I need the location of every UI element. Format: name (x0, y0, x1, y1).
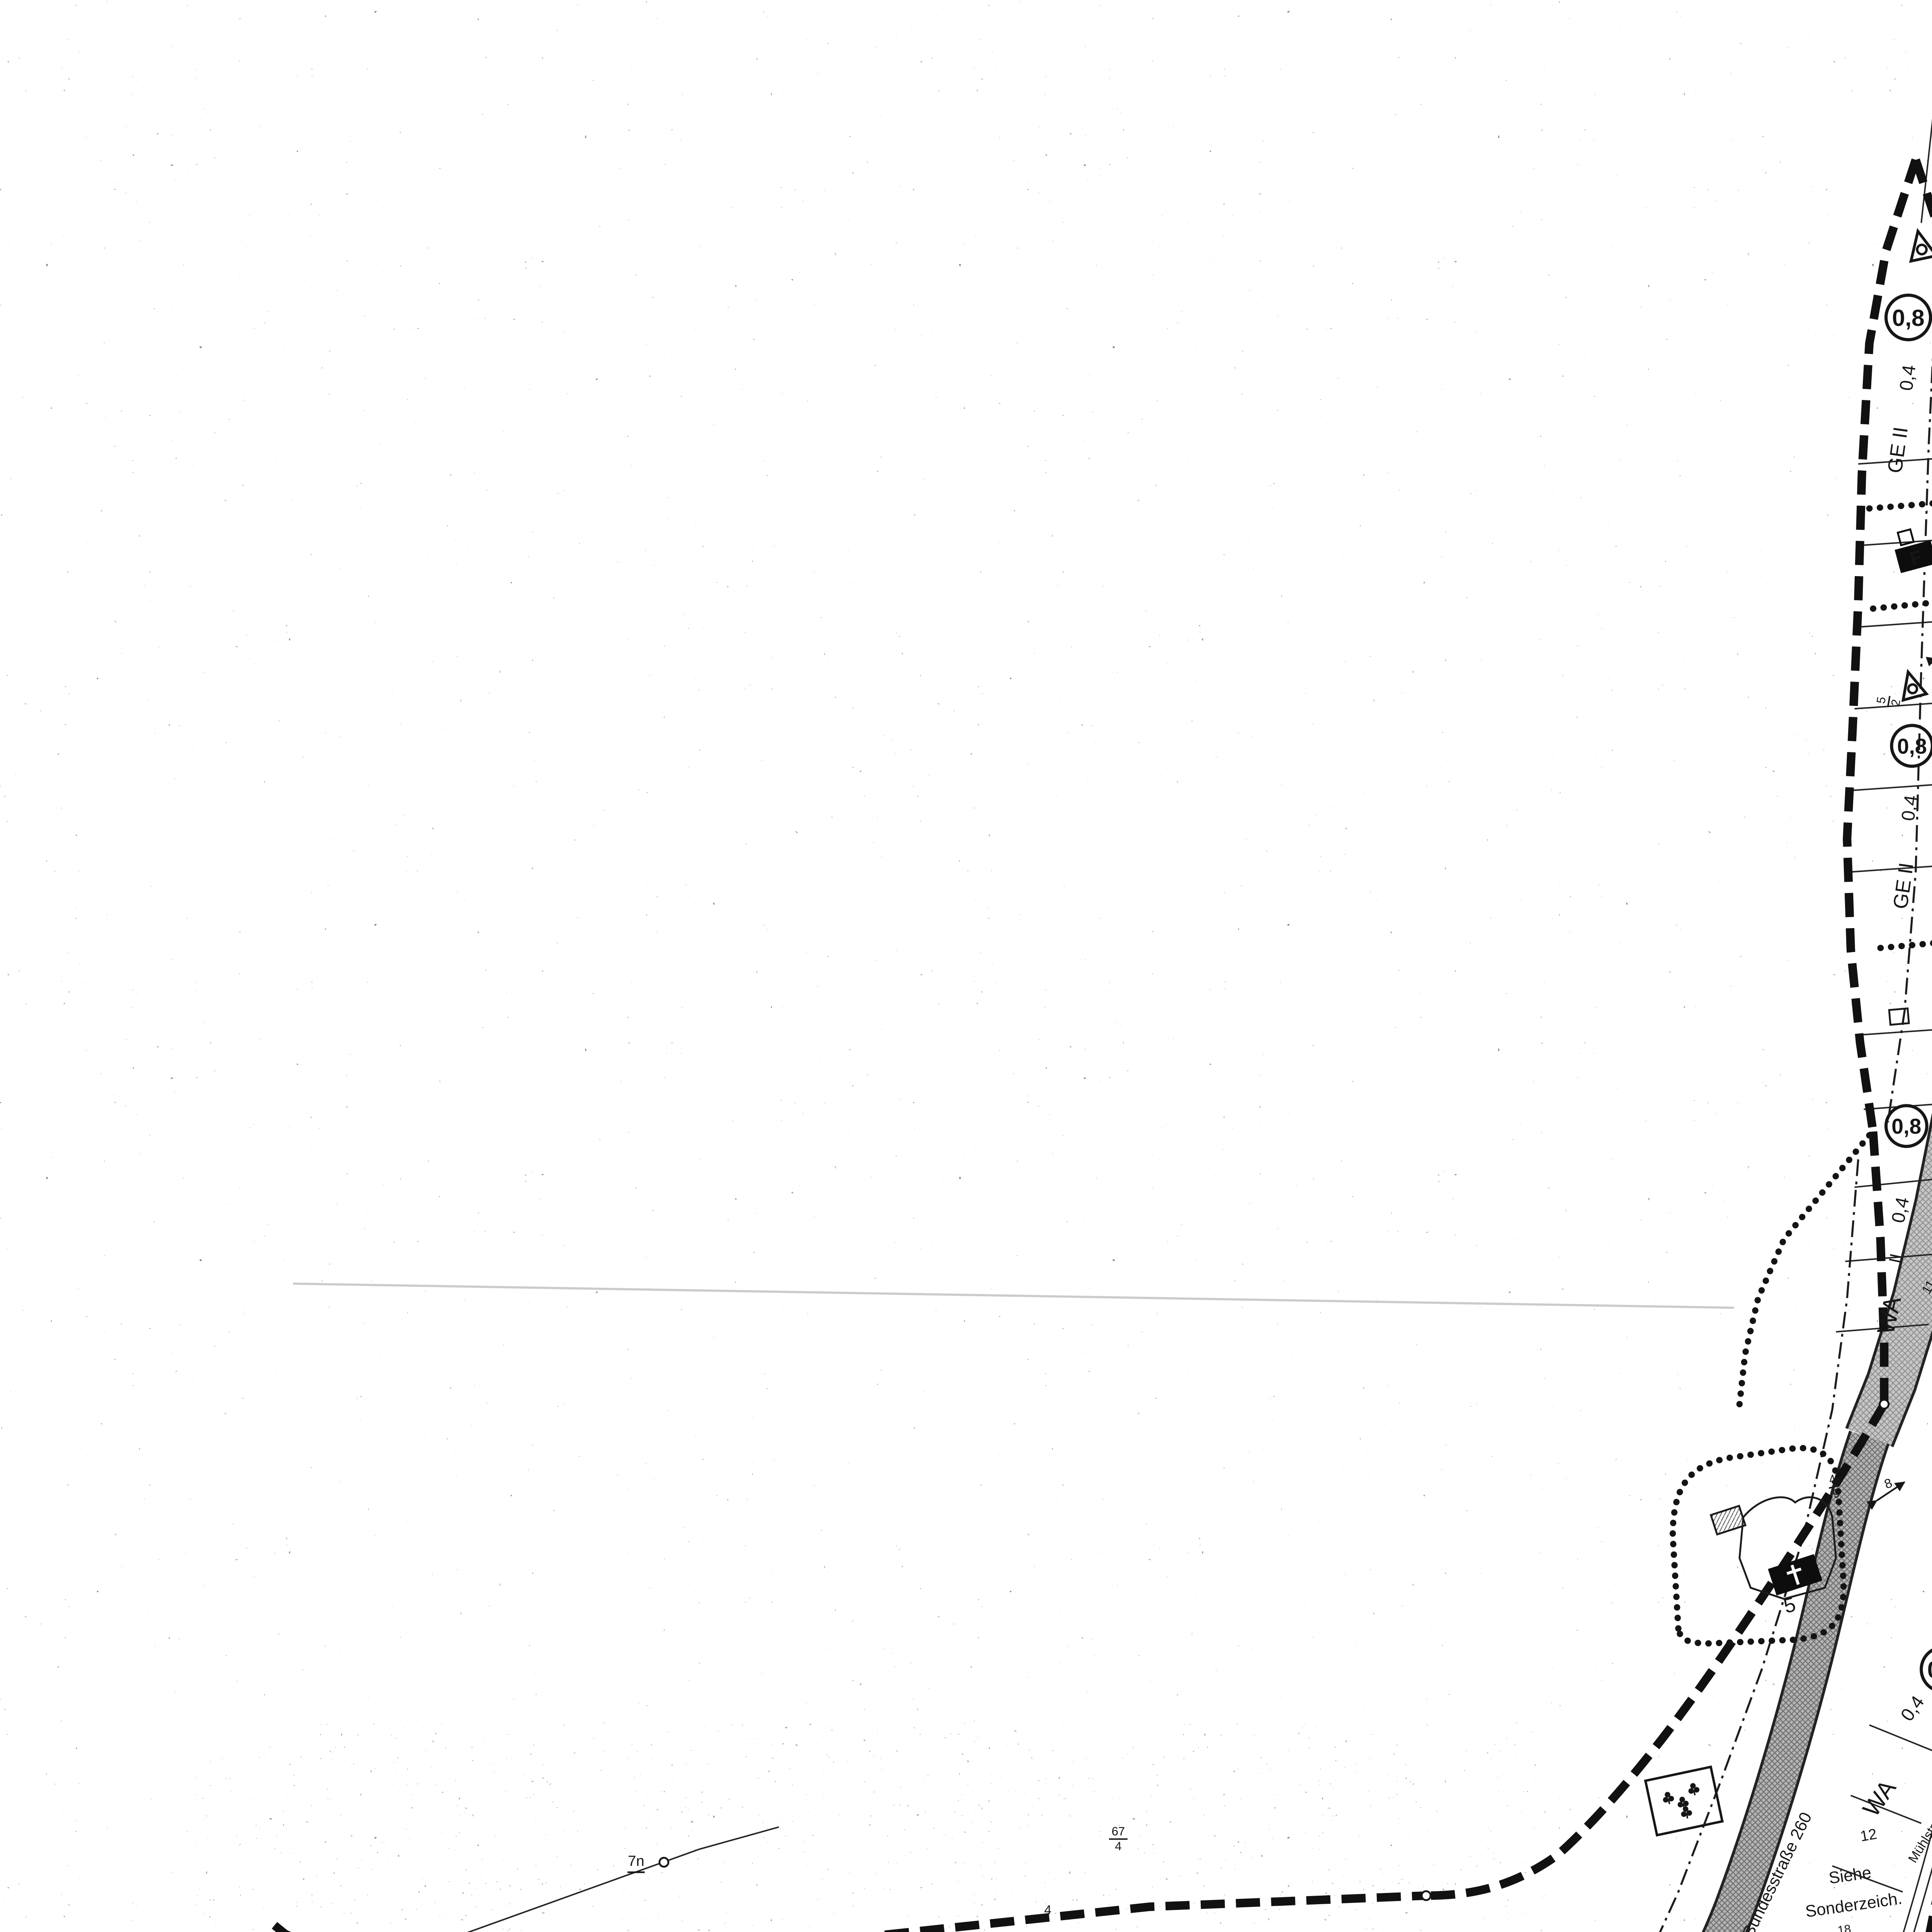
survey-point (1422, 1891, 1430, 1900)
survey-point (660, 1858, 668, 1867)
map-label: 0,4 (1896, 364, 1920, 392)
circle-value: 0,8 (1897, 734, 1927, 758)
map-label: 0,4 (1898, 794, 1922, 822)
scan-noise (0, 0, 1932, 1932)
fraction-denominator: 4 (1115, 1839, 1121, 1853)
zoning-map-scan: F 0,80,80,80,80,80,80,80,82,2 6742311593… (0, 0, 1932, 1932)
survey-point (1880, 1400, 1889, 1408)
circle-value: 0,8 (1891, 1114, 1921, 1138)
fraction-numerator: 67 (1112, 1825, 1125, 1838)
circle-value: 0,8 (1927, 1656, 1932, 1683)
map-label: 7n (628, 1853, 645, 1869)
fraction-numerator: 18 (1837, 1922, 1852, 1932)
map-label: 4 (1044, 1903, 1051, 1917)
circle-value: 0,8 (1892, 304, 1925, 331)
map-label: 12 (1859, 1826, 1878, 1845)
